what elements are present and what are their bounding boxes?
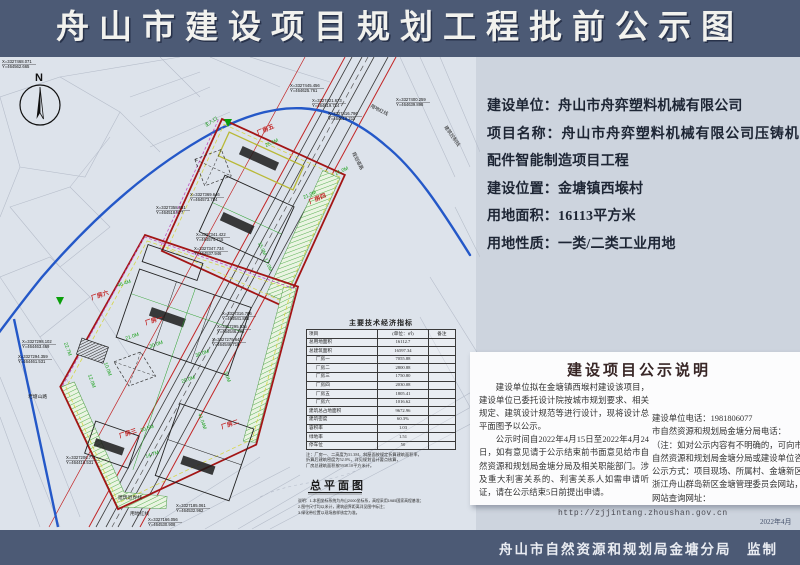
coordinate-callout: Y=464574.715 — [196, 237, 224, 242]
table-row: 厂房三1750.80 — [307, 372, 456, 381]
coordinate-callout: Y=464532.962 — [176, 508, 204, 513]
table-row: 厂房二2800.88 — [307, 364, 456, 373]
footer-band: 舟山市自然资源和规划局金塘分局 监制 — [0, 530, 800, 565]
plan-note: 3.绿化带位置以现场放样核定为准。 — [298, 510, 360, 515]
table-row: 厂房六1016.62 — [307, 398, 456, 407]
year-note: 2022年4月 — [760, 517, 792, 527]
coordinate-callout: Y=464562.665 — [2, 64, 30, 69]
table-row: 容积率1.03 — [307, 424, 456, 433]
plan-note: 说明：1.本图坐标系统为舟山2000坐标系，高程采用1985国家高程基准； — [298, 498, 424, 503]
public-notice-poster: { "header": { "title": "舟山市建设项目规划工程批前公示图… — [0, 0, 800, 565]
table-row: 停车位50 — [307, 441, 456, 450]
notice-contact-line: 浙江舟山群岛新区金塘管理委员会网站， — [652, 478, 800, 491]
notice-contact-line: 建设单位电话：1981806077 — [652, 412, 800, 425]
notice-title: 建设项目公示说明 — [470, 359, 800, 380]
table-row: 绿地率1.51 — [307, 433, 456, 442]
footer-text: 舟山市自然资源和规划局金塘分局 监制 — [499, 538, 778, 558]
coordinate-callout: Y=464461.531 — [18, 359, 46, 364]
coordinate-callout: Y=464610.211 — [328, 116, 356, 121]
notice-contact-line: 市自然资源和规划局金塘分局电话： — [652, 425, 800, 438]
table-row: 建筑密度60.3% — [307, 415, 456, 424]
indicators-table-notes: 注：厂房一、二高度为31.3M，斜屋面按规定折算建筑面积率，折算后建筑密度为52… — [306, 452, 456, 469]
coordinate-callout: Y=464537.946 — [194, 251, 222, 256]
table-row: 厂房五1805.41 — [307, 390, 456, 399]
indicators-table: 主要技术经济指标 项目(单位：㎡)备注总用地面积16112.7总建筑面积1659… — [306, 318, 456, 469]
info-line-4: 用地性质：一类/二类工业用地 — [487, 231, 799, 259]
table-row: 厂房一7055.88 — [307, 355, 456, 364]
line-label: 老塘山路 — [28, 393, 47, 400]
project-info: 建设单位：舟山市舟弈塑料机械有限公司项目名称：舟山市舟弈塑料机械有限公司压铸机配… — [487, 93, 799, 258]
notice-contact-line: 公示方式：项目现场、所属村、金塘新区 — [652, 465, 800, 478]
coordinate-callout: Y=464541.882 — [222, 316, 250, 321]
notice-paragraph: 建设单位拟在金塘镇西堠村建设该项目，建设单位已委托设计院按城市规划要求、相关规定… — [479, 381, 649, 433]
table-row: 建筑总占地面积9672.96 — [307, 407, 456, 416]
info-line-3: 用地面积：16113平方米 — [487, 203, 799, 231]
north-label: N — [35, 72, 43, 84]
notice-box: 建设项目公示说明 建设单位拟在金塘镇西堠村建设该项目，建设单位已委托设计院按城市… — [470, 352, 800, 505]
info-line-1: 项目名称：舟山市舟弈塑料机械有限公司压铸机配件智能制造项目工程 — [487, 121, 799, 176]
line-label: 建筑退界线 — [118, 494, 142, 501]
table-row: 总用地面积16112.7 — [307, 338, 456, 347]
info-line-2: 建设位置：金塘镇西堠村 — [487, 176, 799, 204]
indicators-table-title: 主要技术经济指标 — [306, 318, 456, 328]
notice-contact-line: （注：如对公示内容有不明确的，可向市 — [652, 439, 800, 452]
coordinate-callout: Y=464619.714 — [312, 103, 340, 108]
coordinate-callout: Y=464463.469 — [22, 344, 50, 349]
coordinate-callout: Y=464639.898 — [396, 102, 424, 107]
line-label: 用地红线 — [130, 510, 149, 517]
notice-left-column: 建设单位拟在金塘镇西堠村建设该项目，建设单位已委托设计院按城市规划要求、相关规定… — [479, 381, 649, 499]
coordinate-callout: Y=464573.784 — [190, 197, 218, 202]
page-title: 舟山市建设项目规划工程批前公示图 — [0, 0, 800, 57]
table-header-row: 项目(单位：㎡)备注 — [307, 330, 456, 339]
header-band: 舟山市建设项目规划工程批前公示图 — [0, 0, 800, 57]
notice-contact-line: 网站查询网址： — [652, 492, 800, 505]
plan-title: 总平面图 — [310, 478, 366, 492]
coordinate-callout: Y=464625.761 — [290, 88, 318, 93]
coordinate-callout: Y=464546.718 — [212, 342, 240, 347]
coordinate-callout: Y=464546.396 — [217, 329, 245, 334]
notice-paragraph: 公示时间自2022年4月15日至2022年4月24日，如有意见请于公示结束前书面… — [479, 433, 649, 498]
notice-url: http://zjjintang.zhoushan.gov.cn — [558, 509, 728, 518]
info-line-0: 建设单位：舟山市舟弈塑料机械有限公司 — [487, 93, 799, 121]
coordinate-callout: Y=464530.908 — [148, 522, 176, 527]
notice-contact-line: 自然资源和规划局金塘分局或建设单位咨 — [652, 452, 800, 465]
coordinate-callout: Y=464416.531 — [66, 460, 94, 465]
coordinate-callout: Y=464518.877 — [156, 210, 184, 215]
table-row: 总建筑面积16597.34 — [307, 347, 456, 356]
notice-right-column: 建设单位电话：1981806077市自然资源和规划局金塘分局电话：（注：如对公示… — [652, 412, 800, 505]
table-row: 厂房四2030.08 — [307, 381, 456, 390]
plan-note: 2.图中尺寸均以米计，建筑退界距离详见图中标注； — [298, 504, 387, 509]
